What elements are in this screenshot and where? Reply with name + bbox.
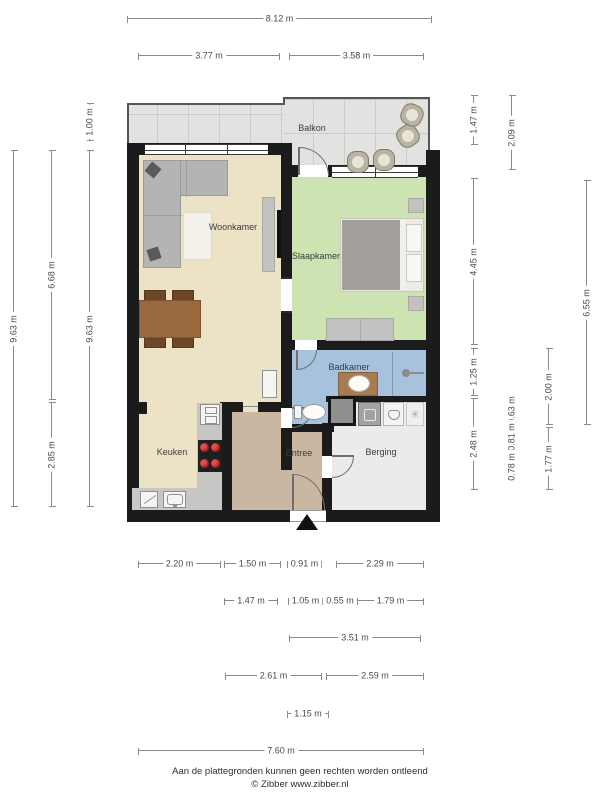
- wall-right-outer: [426, 150, 440, 522]
- dimension-0.63-m: 0.63 m: [511, 398, 512, 421]
- dim-label: 0.91 m: [288, 559, 322, 570]
- dim-label: 9.63 m: [85, 312, 96, 346]
- dim-tick: [420, 635, 421, 642]
- dim-label: 7.60 m: [264, 746, 298, 757]
- window-divider: [185, 145, 186, 154]
- dimension-0.91-m: 0.91 m: [287, 563, 322, 564]
- dimension-1.79-m: 1.79 m: [357, 600, 424, 601]
- duct-shaft: [328, 396, 356, 426]
- footer-disclaimer: Aan de plattegronden kunnen geen rechten…: [0, 766, 600, 777]
- dim-tick: [509, 95, 516, 96]
- dimension-1.77-m: 1.77 m: [548, 427, 549, 490]
- dimension-7.60-m: 7.60 m: [138, 750, 424, 751]
- room-label-slaapkamer: Slaapkamer: [292, 251, 340, 261]
- dim-tick: [87, 506, 94, 507]
- bathroom-door-opening: [281, 408, 292, 428]
- dim-label: 2.00 m: [544, 370, 555, 404]
- window-divider: [227, 145, 228, 154]
- cooktop-icon: [198, 440, 222, 472]
- dim-tick: [49, 402, 56, 403]
- window-center-line: [145, 150, 268, 151]
- dim-tick: [287, 711, 288, 718]
- dim-tick: [225, 673, 226, 680]
- dim-label: 3.58 m: [340, 51, 374, 62]
- wall-divider-mid: [281, 312, 292, 408]
- dim-tick: [49, 506, 56, 507]
- dim-tick: [423, 561, 424, 568]
- bed-duvet: [342, 220, 400, 290]
- dim-label: 2.29 m: [363, 559, 397, 570]
- dimension-2.29-m: 2.29 m: [336, 563, 424, 564]
- dim-label: 1.47 m: [469, 103, 480, 137]
- washing-machine-icon: [358, 402, 381, 426]
- dim-tick: [326, 673, 327, 680]
- dimension-6.55-m: 6.55 m: [586, 180, 587, 425]
- pillow: [406, 224, 422, 252]
- door-frame-tick: [281, 277, 292, 279]
- microwave-icon: [205, 407, 217, 414]
- dim-tick: [87, 103, 94, 104]
- dimension-0.78-m: 0.78 m: [511, 453, 512, 481]
- hall-floor: [232, 412, 281, 510]
- dim-tick: [471, 178, 478, 179]
- dim-tick: [584, 424, 591, 425]
- chair-seat: [400, 128, 417, 145]
- sink-basin: [167, 494, 183, 505]
- dining-table: [139, 300, 201, 338]
- dim-tick: [328, 711, 329, 718]
- dimension-3.51-m: 3.51 m: [289, 637, 421, 638]
- dim-tick: [471, 398, 478, 399]
- tv-cabinet: [262, 197, 275, 272]
- burner: [211, 443, 220, 452]
- balcony-railing-right: [428, 97, 430, 152]
- dim-label: 9.63 m: [9, 312, 20, 346]
- balcony-railing-left: [127, 103, 129, 145]
- dim-label: 2.85 m: [47, 438, 58, 472]
- wall-hall-storage-upper: [322, 423, 332, 456]
- chair-seat: [352, 156, 364, 168]
- oven-door-icon: [205, 416, 217, 424]
- dimension-2.48-m: 2.48 m: [473, 398, 474, 490]
- dim-tick: [336, 561, 337, 568]
- shower-pipe: [410, 372, 424, 374]
- dim-tick: [224, 561, 225, 568]
- dim-label: 1.00 m: [85, 105, 96, 139]
- hall-floor-pass: [281, 470, 292, 510]
- nightstand: [408, 198, 424, 213]
- dimension-2.00-m: 2.00 m: [548, 348, 549, 425]
- dim-tick: [138, 748, 139, 755]
- burner: [200, 459, 209, 468]
- burner: [211, 459, 220, 468]
- dimension-2.85-m: 2.85 m: [51, 402, 52, 507]
- dimension-8.12-m: 8.12 m: [127, 18, 432, 19]
- kitchen-corner-unit-icon: [140, 491, 158, 508]
- dim-tick: [546, 427, 553, 428]
- room-label-balkon: Balkon: [298, 123, 326, 133]
- dim-tick: [471, 95, 478, 96]
- dimension-0.81-m: 0.81 m: [511, 423, 512, 451]
- dim-label: 1.25 m: [469, 355, 480, 389]
- door-frame-tick: [281, 311, 292, 313]
- dimension-1.47-m: 1.47 m: [473, 95, 474, 145]
- basket-outline: [388, 410, 400, 420]
- balcony-chair: [373, 149, 395, 171]
- livingroom-window: [145, 144, 268, 155]
- dimension-1.05-m: 1.05 m: [288, 600, 323, 601]
- dim-label: 1.79 m: [374, 596, 408, 607]
- wall-living-hall-a: [139, 402, 147, 414]
- living-hall-opening-line: [243, 406, 258, 407]
- dim-tick: [423, 673, 424, 680]
- dim-tick: [289, 53, 290, 60]
- balcony-railing-step: [283, 97, 285, 105]
- dim-tick: [49, 150, 56, 151]
- dim-label: 0.81 m: [507, 420, 518, 454]
- wall-left-outer: [127, 143, 139, 522]
- dim-label: 2.59 m: [358, 671, 392, 682]
- dimension-1.47-m: 1.47 m: [224, 600, 278, 601]
- dim-tick: [471, 489, 478, 490]
- coffee-table: [183, 212, 212, 260]
- dim-tick: [423, 53, 424, 60]
- dimension-0.55-m: 0.55 m: [325, 600, 355, 601]
- dim-tick: [546, 424, 553, 425]
- dim-label: 1.77 m: [544, 442, 555, 476]
- shower-partition: [392, 352, 393, 396]
- washer-door-icon: [364, 409, 376, 421]
- dim-label: 2.61 m: [257, 671, 291, 682]
- burner: [200, 443, 209, 452]
- dim-label: 0.78 m: [507, 450, 518, 484]
- dim-label: 1.50 m: [236, 559, 270, 570]
- floorplan-canvas: ✳ BalkonWoonkamerSlaapkamerBadkamerKeuke…: [0, 0, 600, 800]
- oven-icon: [200, 404, 220, 425]
- dimension-9.63-m: 9.63 m: [13, 150, 14, 507]
- dimension-9.63-m: 9.63 m: [89, 150, 90, 507]
- wall-bottom-right: [326, 510, 440, 522]
- dim-label: 3.51 m: [338, 633, 372, 644]
- living-bedroom-opening: [281, 278, 292, 312]
- dim-tick: [220, 561, 221, 568]
- dim-tick: [423, 748, 424, 755]
- toilet-tank: [294, 405, 302, 419]
- dim-label: 2.20 m: [163, 559, 197, 570]
- washbasin-icon: [348, 375, 370, 392]
- dimension-1.00-m: 1.00 m: [89, 103, 90, 141]
- storage-door-opening: [322, 456, 332, 478]
- chair-seat: [378, 154, 390, 166]
- dim-tick: [138, 561, 139, 568]
- wardrobe-line: [360, 319, 361, 340]
- tv: [277, 210, 281, 258]
- room-label-badkamer: Badkamer: [328, 362, 369, 372]
- kitchen-sink-icon: [163, 491, 186, 508]
- dimension-1.50-m: 1.50 m: [224, 563, 281, 564]
- room-label-keuken: Keuken: [157, 447, 188, 457]
- dim-tick: [431, 16, 432, 23]
- dimension-2.09-m: 2.09 m: [511, 95, 512, 170]
- dimension-3.58-m: 3.58 m: [289, 55, 424, 56]
- dim-tick: [87, 140, 94, 141]
- footer-credit: © Zibber www.zibber.nl: [0, 779, 600, 790]
- balcony-railing-top-left: [127, 103, 283, 105]
- dimension-2.59-m: 2.59 m: [326, 675, 424, 676]
- corner-unit-diagonal: [144, 495, 156, 504]
- dim-tick: [49, 399, 56, 400]
- dim-label: 8.12 m: [263, 14, 297, 25]
- dim-label: 3.77 m: [192, 51, 226, 62]
- balcony-floor: [127, 103, 283, 148]
- dim-tick: [11, 150, 18, 151]
- wall-bedroom-bathroom: [317, 340, 426, 350]
- pillow: [406, 254, 422, 282]
- room-label-woonkamer: Woonkamer: [209, 222, 257, 232]
- chair-seat: [404, 107, 420, 123]
- dim-label: 2.09 m: [507, 116, 518, 150]
- sofa-seam: [144, 215, 182, 216]
- sofa-seam: [186, 161, 187, 197]
- dim-tick: [471, 144, 478, 145]
- nightstand: [408, 296, 424, 311]
- dim-tick: [277, 598, 278, 605]
- dim-tick: [138, 53, 139, 60]
- dim-tick: [584, 180, 591, 181]
- dim-tick: [224, 598, 225, 605]
- dimension-2.61-m: 2.61 m: [225, 675, 322, 676]
- dimension-1.25-m: 1.25 m: [473, 348, 474, 396]
- dim-tick: [471, 344, 478, 345]
- dim-label: 2.48 m: [469, 427, 480, 461]
- dimension-2.20-m: 2.20 m: [138, 563, 221, 564]
- dimension-1.15-m: 1.15 m: [287, 713, 329, 714]
- laundry-basket-icon: [383, 402, 404, 426]
- bedroom-bathroom-door-opening: [295, 340, 317, 350]
- dim-tick: [279, 53, 280, 60]
- dimension-4.45-m: 4.45 m: [473, 178, 474, 345]
- dim-tick: [127, 16, 128, 23]
- dimension-3.77-m: 3.77 m: [138, 55, 280, 56]
- room-label-berging: Berging: [365, 447, 396, 457]
- dim-label: 0.55 m: [323, 596, 357, 607]
- balcony-railing-top-right: [283, 97, 430, 99]
- dim-tick: [471, 395, 478, 396]
- dim-tick: [87, 150, 94, 151]
- shower-icon: [402, 369, 410, 377]
- toilet-icon: [302, 404, 326, 420]
- dim-label: 6.55 m: [582, 286, 593, 320]
- room-label-entree: Entree: [286, 448, 313, 458]
- dim-tick: [546, 348, 553, 349]
- dim-tick: [357, 598, 358, 605]
- faucet: [173, 505, 177, 508]
- entrance-arrow-icon: [296, 514, 318, 530]
- dim-tick: [546, 489, 553, 490]
- dim-label: 1.15 m: [291, 709, 325, 720]
- dim-label: 1.05 m: [289, 596, 323, 607]
- dim-tick: [11, 506, 18, 507]
- dim-tick: [321, 673, 322, 680]
- ventilation-icon: ✳: [406, 402, 424, 426]
- dim-tick: [423, 598, 424, 605]
- dim-tick: [289, 635, 290, 642]
- dim-tick: [509, 169, 516, 170]
- dimension-6.68-m: 6.68 m: [51, 150, 52, 400]
- cabinet: [262, 370, 277, 398]
- dim-tick: [280, 561, 281, 568]
- wall-bottom-left: [127, 510, 290, 522]
- wall-kitchen-hall: [222, 403, 232, 510]
- balcony-chair: [347, 151, 369, 173]
- dim-label: 4.45 m: [469, 245, 480, 279]
- wall-living-hall-b: [220, 402, 243, 412]
- wardrobe: [326, 318, 394, 341]
- wall-divider-upper: [281, 155, 292, 278]
- dim-tick: [471, 348, 478, 349]
- dim-label: 6.68 m: [47, 258, 58, 292]
- dim-label: 1.47 m: [234, 596, 268, 607]
